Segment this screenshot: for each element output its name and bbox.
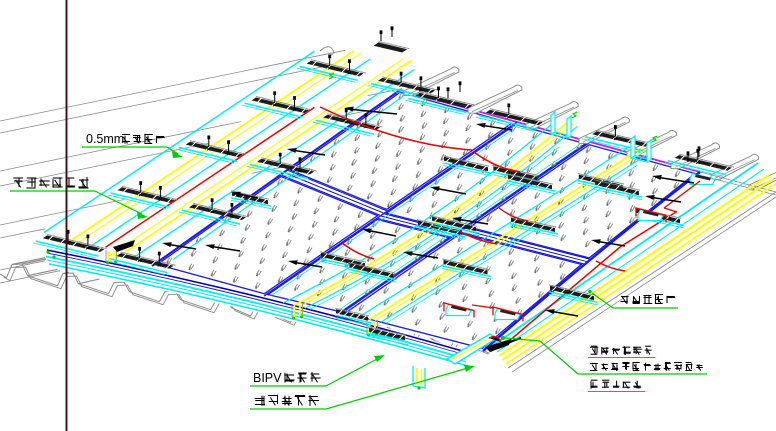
svg-text:BIPV: BIPV <box>253 371 282 385</box>
svg-text:0.5mm: 0.5mm <box>86 132 124 146</box>
